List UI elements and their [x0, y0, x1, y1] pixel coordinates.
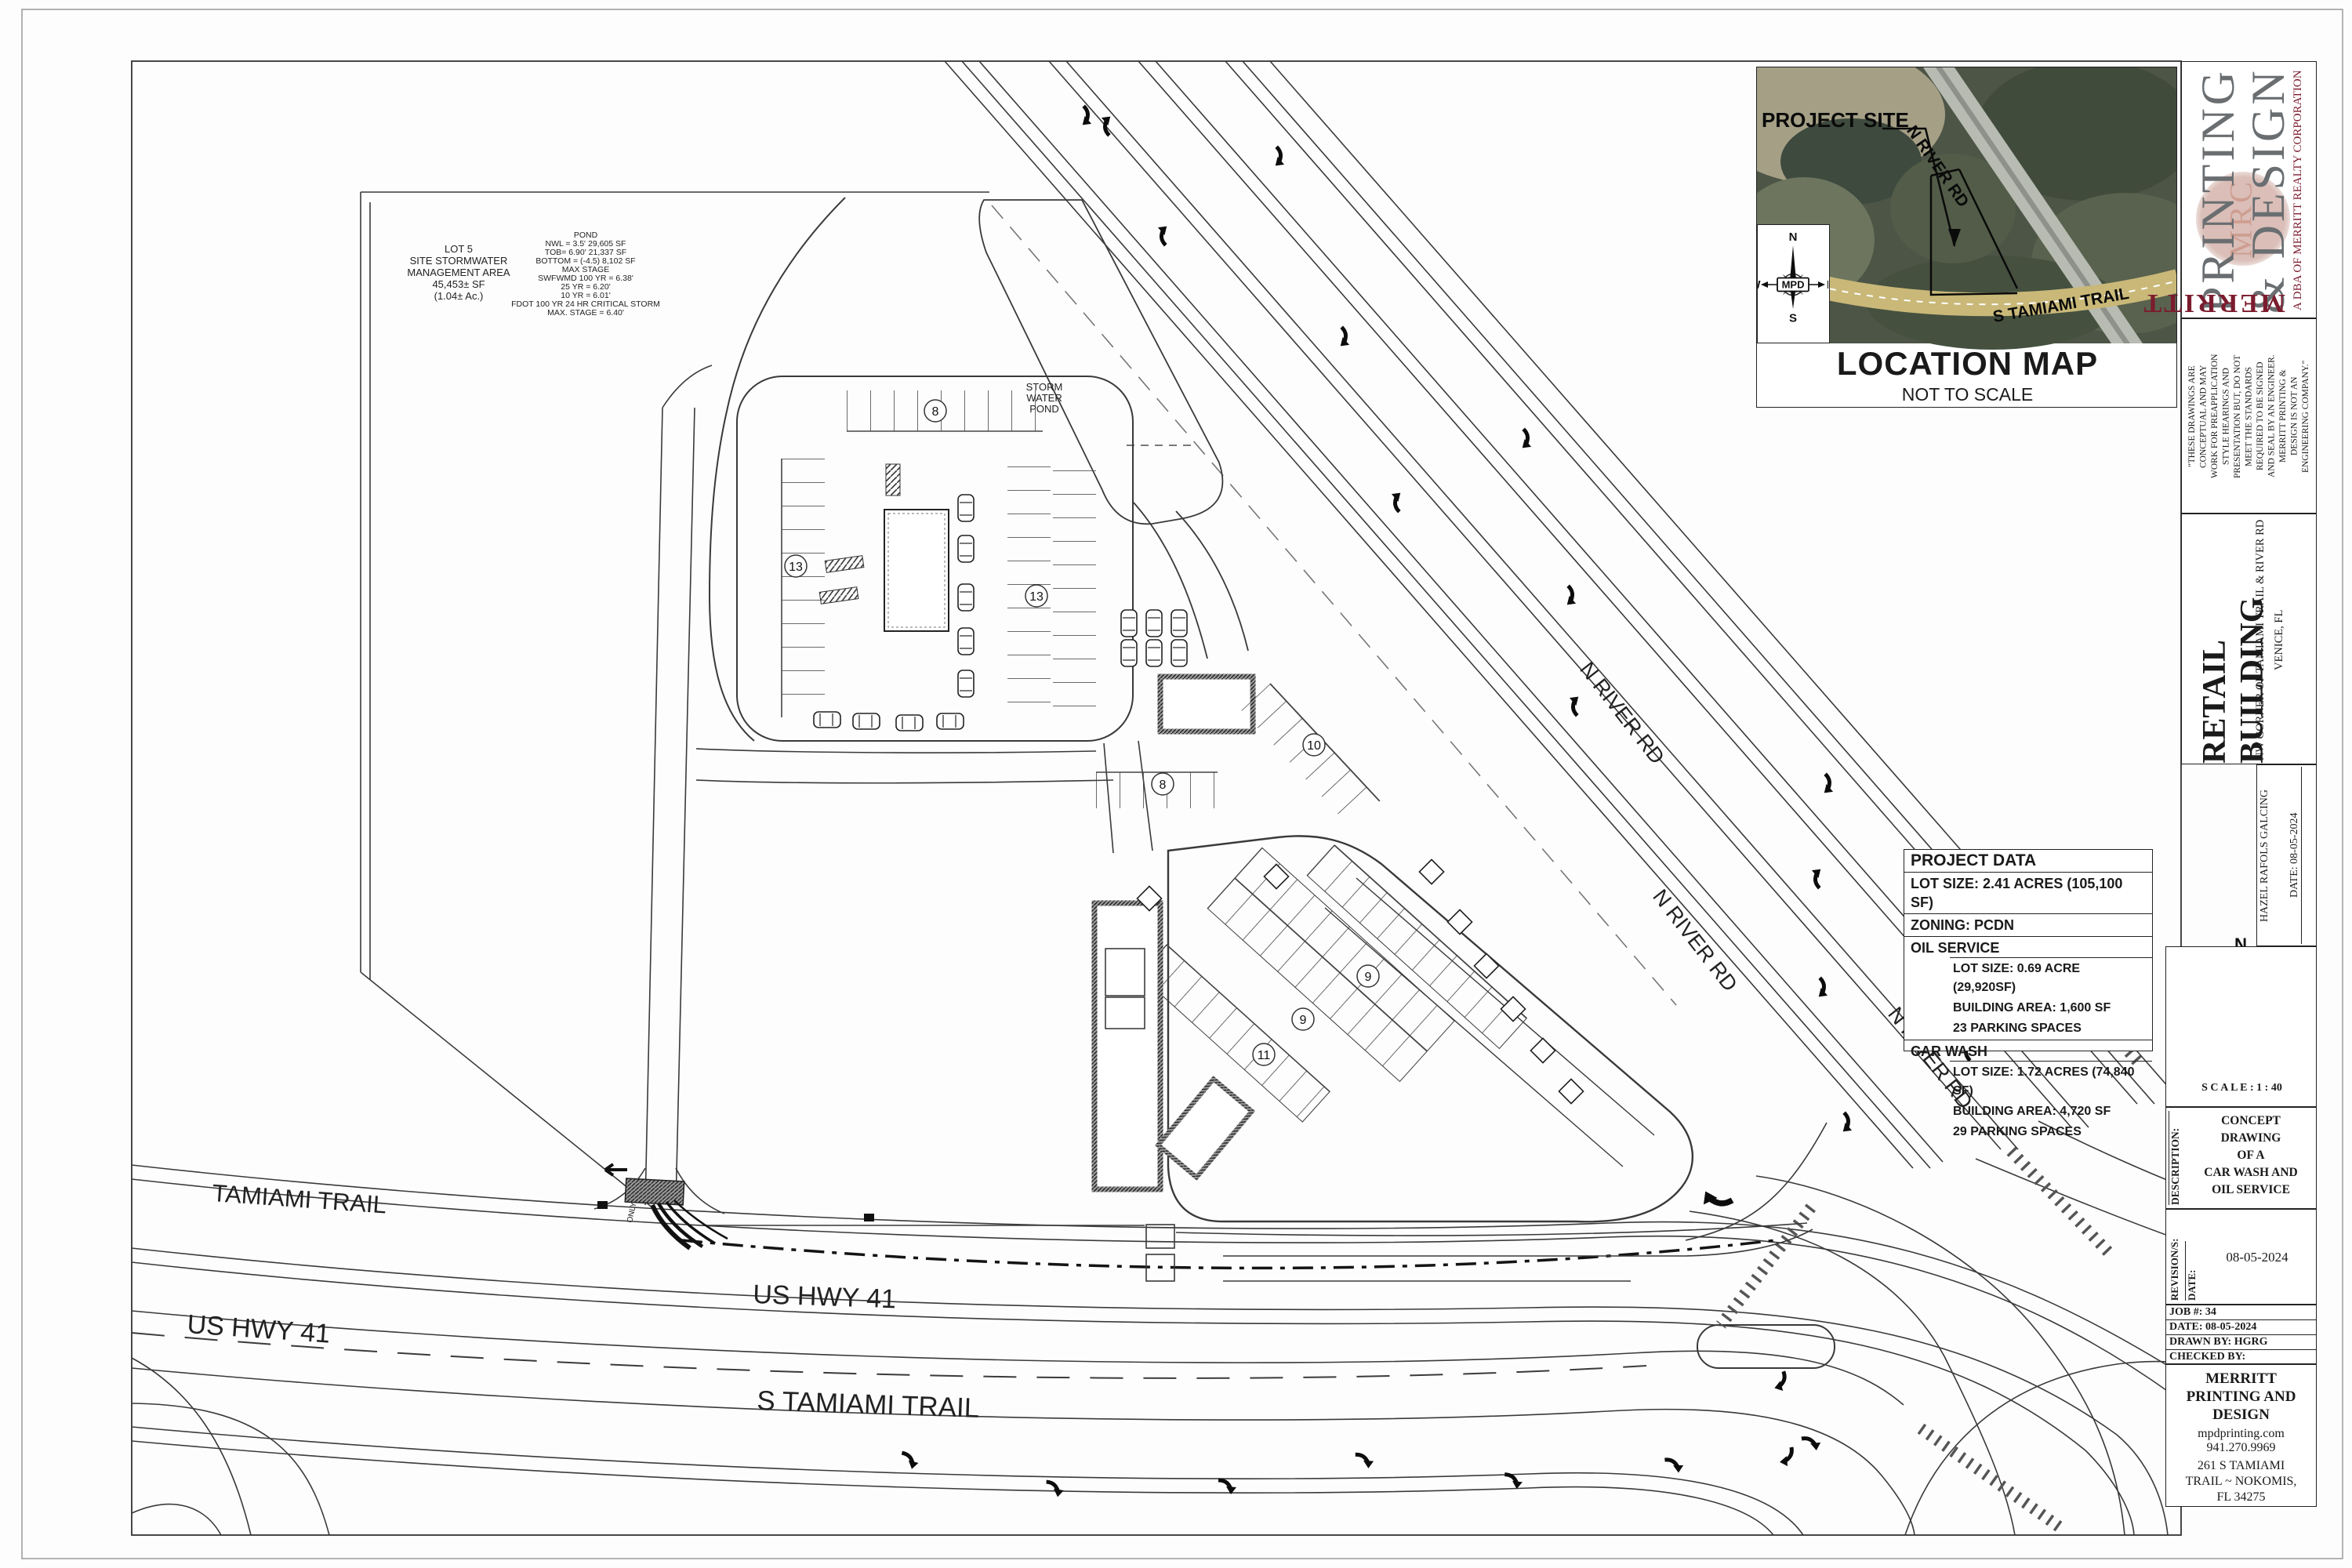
project-data-oil-parking: 23 PARKING SPACES: [1904, 1019, 2152, 1040]
road-label-us-hwy-41-left: US HWY 41: [186, 1309, 331, 1349]
revision-date-value: 08-05-2024: [2202, 1210, 2312, 1305]
road-label-tamiami-trail: TAMIAMI TRAIL: [212, 1179, 388, 1218]
project-data-box: PROJECT DATA LOT SIZE: 2.41 ACRES (105,1…: [1904, 849, 2153, 1051]
lot5-label: LOT 5: [445, 243, 473, 255]
project-data-oil-label: OIL SERVICE: [1904, 937, 2152, 957]
count-north-top: 8: [932, 405, 939, 419]
project-data-oil-area: BUILDING AREA: 1,600 SF: [1904, 999, 2152, 1019]
svg-text:MANAGEMENT AREA: MANAGEMENT AREA: [407, 267, 510, 278]
count-cw-row2: 9: [1300, 1014, 1307, 1027]
plan-labels: LOT 5 SITE STORMWATER MANAGEMENT AREA 45…: [186, 230, 1976, 1424]
svg-text:MAX. STAGE = 6.40': MAX. STAGE = 6.40': [547, 308, 624, 318]
road-label-s-tamiami-trail: S TAMIAMI TRAIL: [757, 1385, 980, 1424]
project-data-lot-size: LOT SIZE: 2.41 ACRES (105,100 SF): [1904, 873, 2152, 914]
project-title-box: RETAIL BUILDING NW CORNER OF TAMIAMI TRA…: [2181, 514, 2317, 764]
job-info-box: JOB #: 34 DATE: 08-05-2024 DRAWN BY: HGR…: [2165, 1305, 2317, 1364]
company-box: MERRITT PRINTING AND DESIGN mpdprinting.…: [2165, 1364, 2317, 1507]
svg-text:45,453± SF: 45,453± SF: [432, 278, 485, 290]
drawn-by: DRAWN BY: HGRG: [2166, 1335, 2316, 1350]
count-north-left: 13: [789, 561, 803, 574]
description-text: CONCEPT DRAWING OF A CAR WASH AND OIL SE…: [2188, 1112, 2314, 1199]
north-lot: [710, 198, 1133, 741]
storm-pond-label: STORM: [1026, 381, 1063, 393]
project-data-oil-lot: LOT SIZE: 0.69 ACRE (29,920SF): [1904, 958, 2152, 999]
svg-text:(1.04± Ac.): (1.04± Ac.): [434, 290, 484, 302]
job-number: JOB #: 34: [2166, 1305, 2316, 1320]
disclaimer-box: "THESE DRAWINGS ARE CONCEPTUAL AND MAY W…: [2181, 318, 2317, 514]
project-subtitle-2: VENICE, FL: [2273, 516, 2286, 764]
project-data-zoning: ZONING: PCDN: [1904, 914, 2152, 937]
count-oil-diag: 10: [1307, 739, 1321, 753]
scale-label: S C A L E : 1 : 40: [2166, 1082, 2318, 1094]
checked-by: CHECKED BY:: [2166, 1350, 2316, 1364]
company-phone: 941.270.9969: [2166, 1441, 2316, 1455]
author-name: HAZEL RAFOLS GALCING: [2259, 767, 2271, 944]
count-oil-row: 8: [1160, 779, 1167, 792]
svg-text:WATER: WATER: [1026, 392, 1062, 404]
company-website: mpdprinting.com: [2166, 1427, 2316, 1441]
description-label: DESCRIPTION:: [2169, 1111, 2183, 1205]
location-map-title: LOCATION MAP: [1757, 343, 2177, 384]
project-data-cw-area: BUILDING AREA: 4,720 SF: [1904, 1102, 2152, 1123]
project-data-cw-lot: LOT SIZE: 1.72 ACRES (74,840 SF): [1904, 1062, 2152, 1102]
brand-design: & DESIGN: [2241, 65, 2296, 316]
description-box: DESCRIPTION: CONCEPT DRAWING OF A CAR WA…: [2165, 1107, 2317, 1209]
company-address: 261 S TAMIAMI TRAIL ~ NOKOMIS, FL 34275: [2166, 1458, 2316, 1505]
brand-dba: A DBA OF MERRITT REALTY CORPORATION: [2292, 65, 2305, 316]
revisions-label: REVISION/S:: [2169, 1213, 2181, 1301]
map-compass-inset: [1757, 224, 1830, 343]
project-site-label: PROJECT SITE: [1762, 108, 1909, 132]
project-data-header: PROJECT DATA: [1904, 850, 2152, 873]
only-pavement-label: ONLY: [626, 1201, 638, 1224]
project-subtitle-1: NW CORNER OF TAMIAMI TRAIL & RIVER RD: [2254, 516, 2267, 764]
scale-box: S C A L E : 1 : 40: [2165, 946, 2317, 1107]
brand-printing: PRINTING: [2191, 65, 2245, 316]
location-map-subtitle: NOT TO SCALE: [1757, 383, 2177, 406]
count-cw-row3: 9: [1365, 971, 1372, 984]
oil-service-area: [1096, 610, 1380, 828]
count-north-right: 13: [1029, 590, 1044, 604]
revision-box: REVISION/S: DATE: 08-05-2024: [2165, 1209, 2317, 1305]
plan-sheet: MPD N S E W: [0, 0, 2352, 1568]
job-date: DATE: 08-05-2024: [2166, 1320, 2316, 1335]
road-label-us-hwy-41-mid: US HWY 41: [753, 1279, 897, 1314]
brand-merritt: MERRITT: [2183, 288, 2285, 318]
us41-corridor: [132, 1165, 2172, 1535]
revision-date-label: DATE:: [2185, 1241, 2200, 1301]
author-date: DATE: 08-05-2024: [2288, 767, 2302, 944]
company-name: MERRITT PRINTING AND DESIGN: [2166, 1370, 2316, 1424]
disclaimer-text: "THESE DRAWINGS ARE CONCEPTUAL AND MAY W…: [2187, 322, 2312, 510]
svg-text:POND: POND: [1029, 403, 1059, 415]
count-cw-row1: 11: [1258, 1049, 1271, 1062]
project-data-cw-label: CAR WASH: [1904, 1040, 2152, 1061]
svg-text:SITE STORMWATER: SITE STORMWATER: [410, 255, 508, 267]
location-map: PROJECT SITE N RIVER RD S TAMIAMI TRAIL …: [1756, 67, 2177, 408]
road-label-n-river-rd-2: N RIVER RD: [1648, 885, 1742, 996]
road-label-n-river-rd-1: N RIVER RD: [1575, 658, 1669, 768]
project-data-cw-parking: 29 PARKING SPACES: [1904, 1123, 2152, 1143]
author-box: HAZEL RAFOLS GALCING DATE: 08-05-2024: [2256, 764, 2317, 946]
brand-logo-box: MRC PRINTING & DESIGN A DBA OF MERRITT R…: [2181, 61, 2317, 318]
